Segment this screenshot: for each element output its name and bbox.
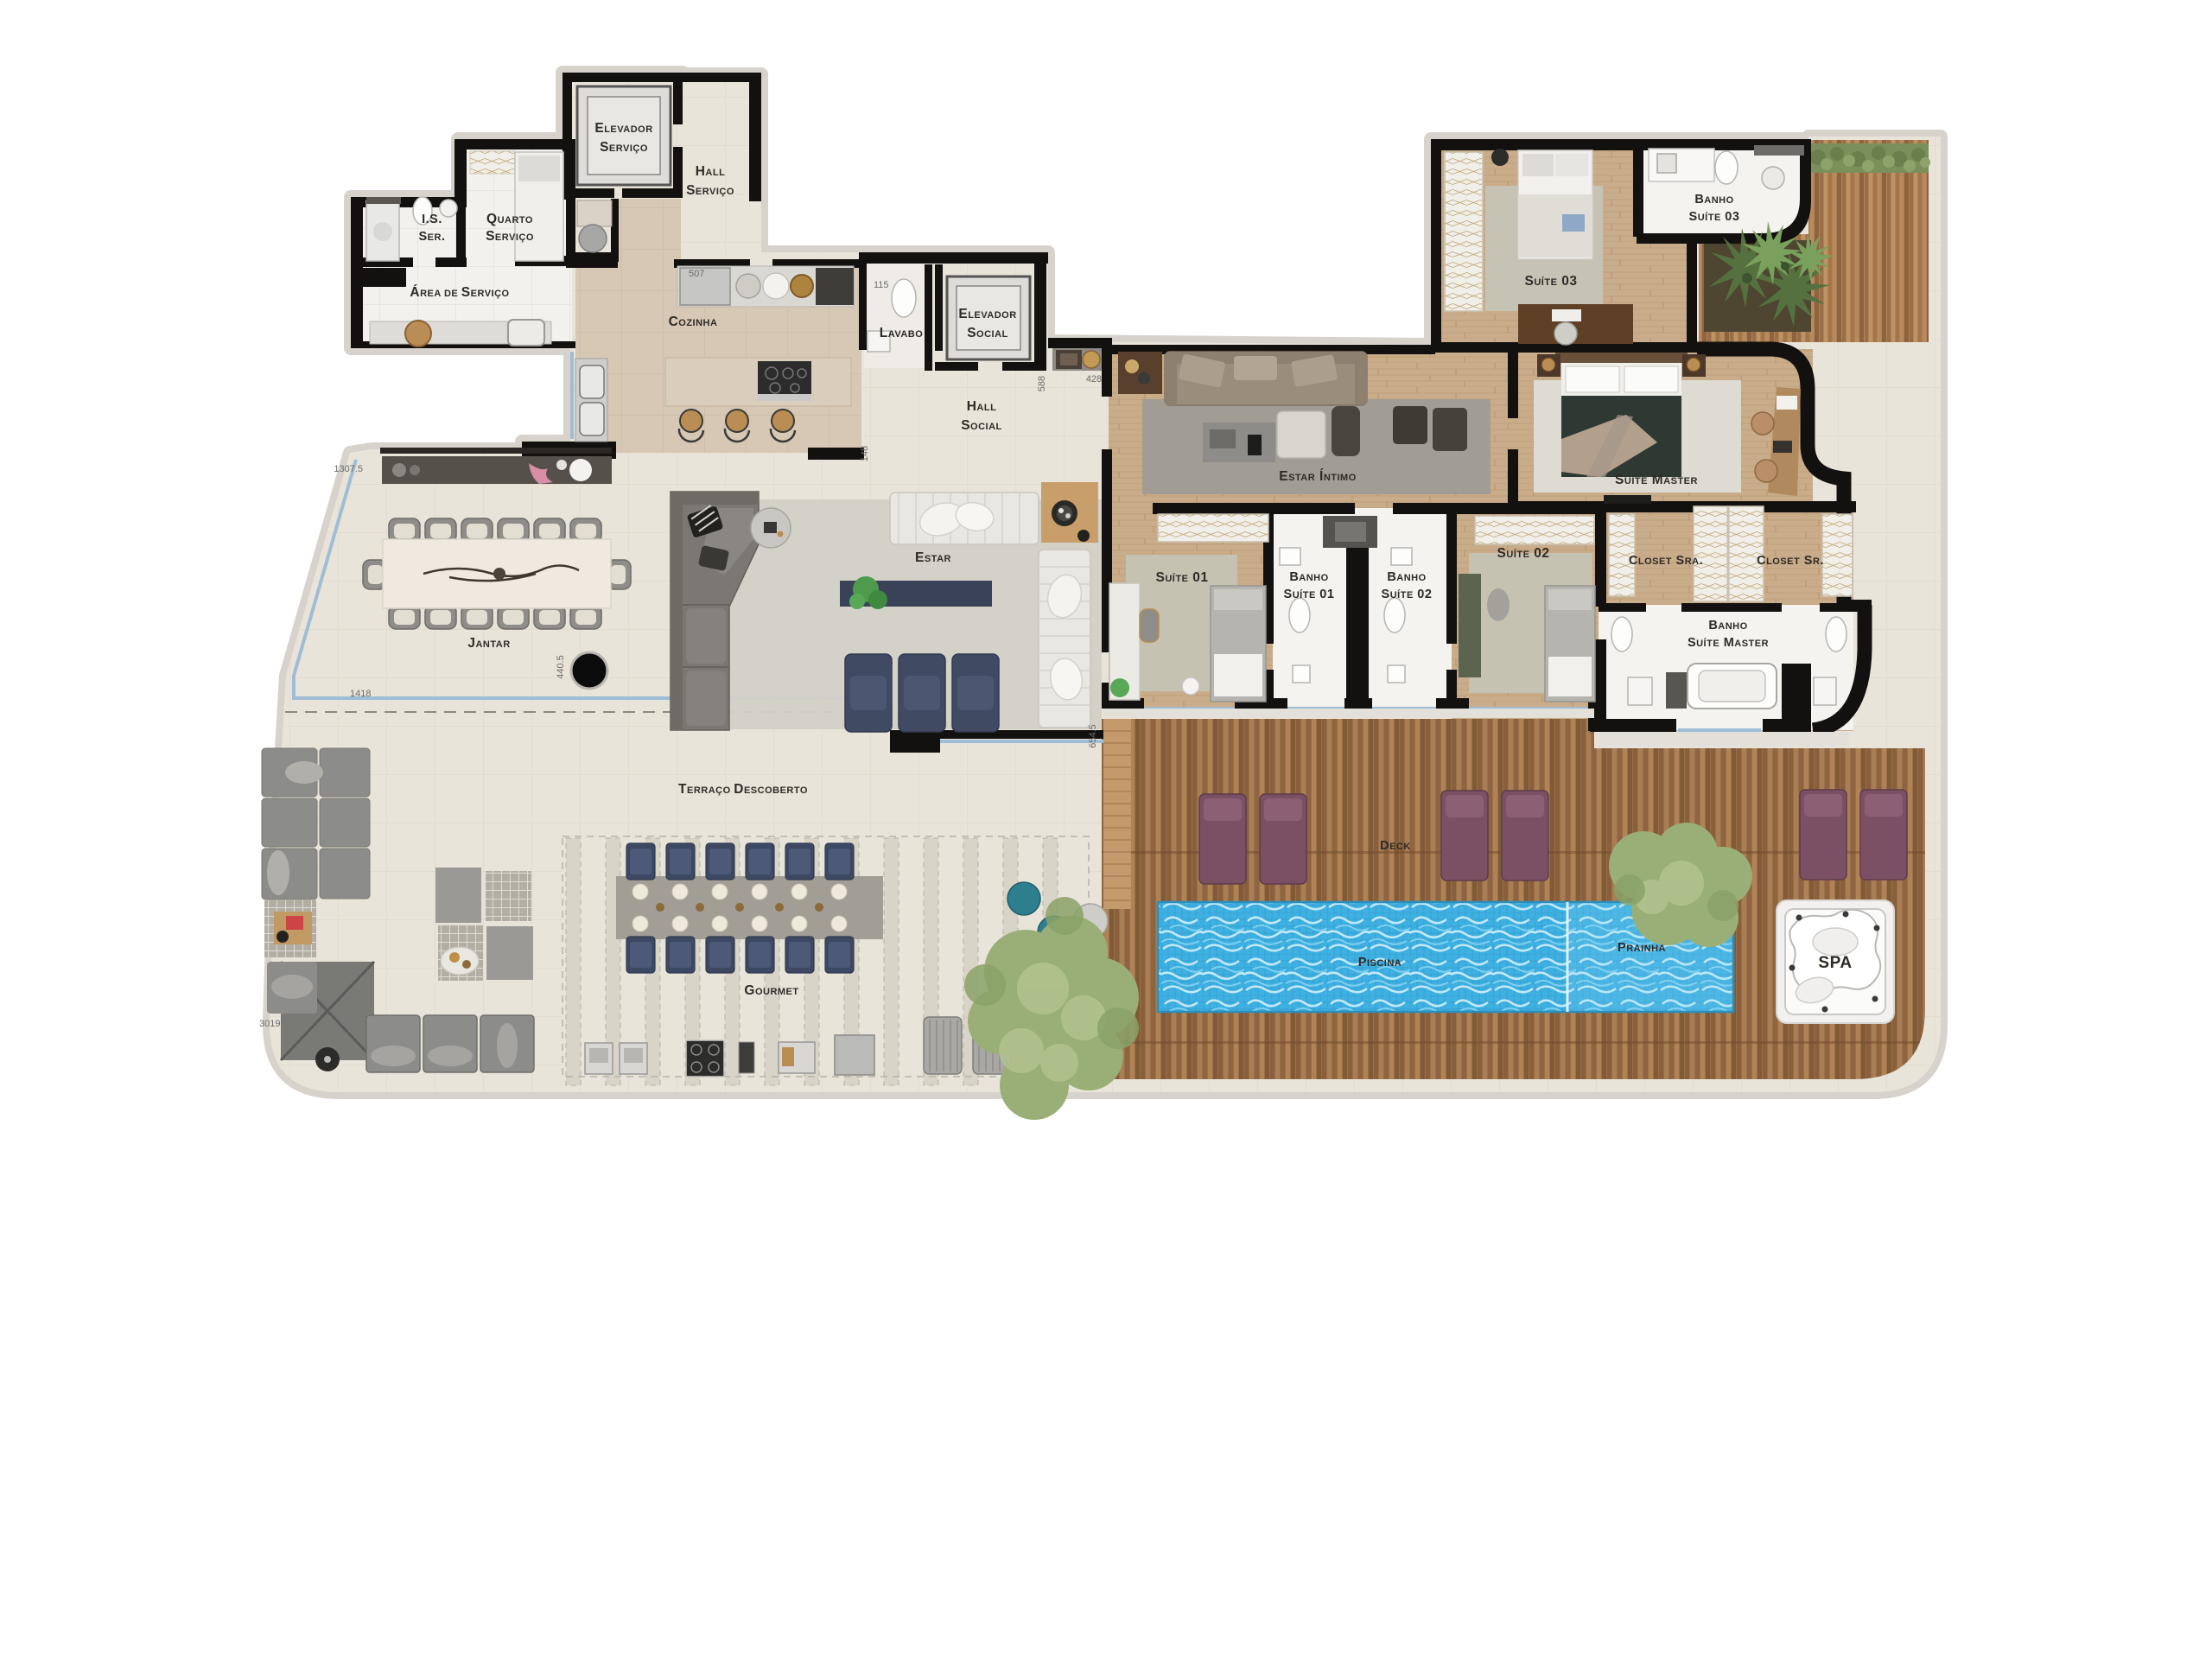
svg-text:I.S.: I.S. — [422, 213, 442, 226]
svg-text:CLOSET SR.: CLOSET SR. — [1757, 554, 1824, 568]
svg-text:115: 115 — [874, 280, 889, 290]
svg-text:428: 428 — [1086, 374, 1102, 385]
svg-text:SUÍTE 03: SUÍTE 03 — [1689, 210, 1740, 224]
svg-text:3019: 3019 — [259, 1019, 280, 1029]
svg-text:148: 148 — [860, 446, 870, 461]
svg-text:1307.5: 1307.5 — [334, 464, 363, 474]
svg-text:588: 588 — [1037, 376, 1047, 391]
svg-text:PRAINHA: PRAINHA — [1618, 941, 1666, 955]
svg-text:PISCINA: PISCINA — [1358, 956, 1402, 969]
svg-text:SUÍTE MASTER: SUÍTE MASTER — [1688, 636, 1769, 650]
svg-text:BANHO: BANHO — [1387, 570, 1426, 584]
svg-text:654.5: 654.5 — [1088, 724, 1098, 748]
svg-text:SER.: SER. — [419, 230, 446, 244]
svg-text:SPA: SPA — [1818, 954, 1852, 972]
svg-text:BANHO: BANHO — [1694, 193, 1733, 207]
svg-text:BANHO: BANHO — [1708, 619, 1747, 632]
svg-text:CLOSET SRA.: CLOSET SRA. — [1629, 554, 1703, 568]
svg-text:1418: 1418 — [350, 689, 371, 699]
svg-text:DECK: DECK — [1380, 839, 1411, 853]
svg-text:SUÍTE 01: SUÍTE 01 — [1284, 588, 1335, 601]
svg-text:507: 507 — [689, 269, 704, 279]
svg-text:440.5: 440.5 — [556, 655, 566, 679]
svg-text:BANHO: BANHO — [1289, 570, 1328, 584]
svg-text:SUÍTE 02: SUÍTE 02 — [1382, 588, 1433, 601]
